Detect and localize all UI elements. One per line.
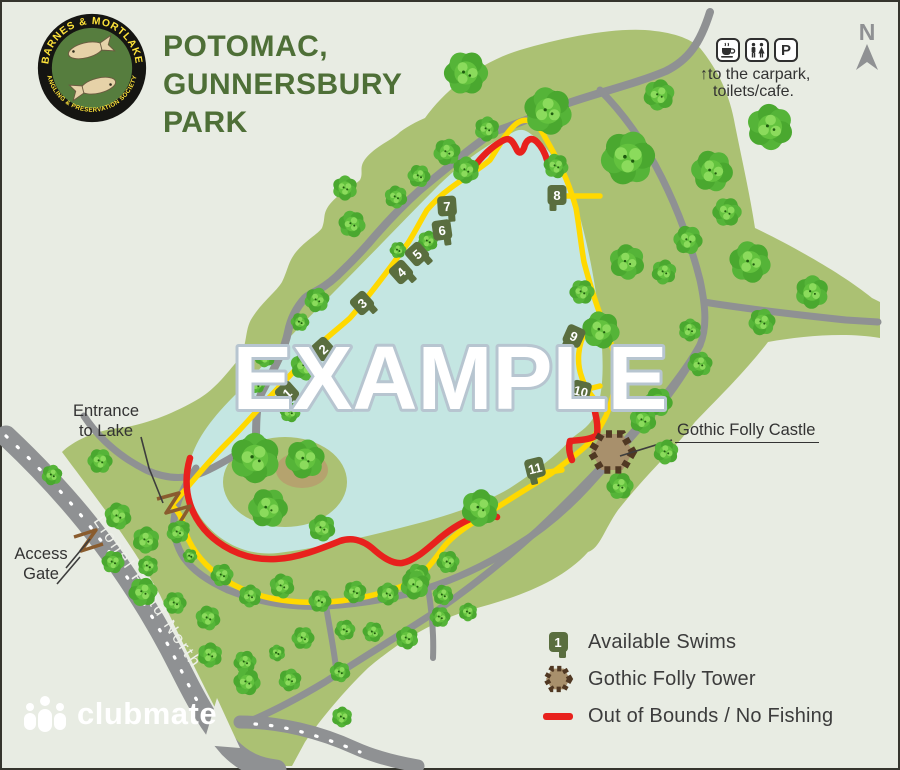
facilities-text-1: to the carpark, <box>708 66 810 83</box>
folly-label: Gothic Folly Castle <box>675 420 819 443</box>
legend-row-swims: 1 Available Swims <box>540 628 833 656</box>
facilities-text-2: toilets/cafe. <box>700 83 810 100</box>
title-line-1: POTOMAC, <box>163 28 402 66</box>
park-map-canvas: Lionel Road North 1234567891011 EXAMPLE <box>0 0 900 770</box>
swim-marker-icon: 1 <box>549 632 568 652</box>
compass: N <box>845 20 889 76</box>
legend-row-folly: Gothic Folly Tower <box>540 665 833 693</box>
tree-icon <box>748 104 792 150</box>
legend-label-bounds: Out of Bounds / No Fishing <box>588 705 833 728</box>
title-line-3: PARK <box>163 104 402 142</box>
legend-label-swims: Available Swims <box>588 631 736 654</box>
toilets-icon <box>745 38 769 62</box>
facilities-note: P ↑to the carpark, toilets/cafe. <box>700 38 810 100</box>
compass-label: N <box>845 20 889 44</box>
page-title: POTOMAC, GUNNERSBURY PARK <box>163 28 402 142</box>
brand-name: clubmate <box>77 696 217 732</box>
people-icon <box>22 694 68 734</box>
legend-swim-number: 1 <box>554 635 561 650</box>
title-line-2: GUNNERSBURY <box>163 66 402 104</box>
access-label-line-1: Access <box>8 544 74 564</box>
entrance-label: Entrance to Lake <box>60 401 152 441</box>
folly-tower-icon <box>541 663 575 695</box>
legend-label-folly: Gothic Folly Tower <box>588 668 756 691</box>
tree-icon <box>332 707 352 728</box>
up-arrow-icon: ↑ <box>700 66 708 83</box>
parking-icon: P <box>774 38 798 62</box>
legend: 1 Available Swims Gothic Folly Tower Out… <box>540 628 833 739</box>
club-logo: BARNES & MORTLAKE ANGLING & PRESERVATION… <box>36 12 148 124</box>
access-gate-label: Access Gate <box>8 544 74 584</box>
entrance-label-line-1: Entrance <box>60 401 152 421</box>
entrance-label-line-2: to Lake <box>60 421 152 441</box>
access-label-line-2: Gate <box>8 564 74 584</box>
parking-letter: P <box>781 42 791 59</box>
north-arrow-icon <box>853 44 881 71</box>
clubmate-logo: clubmate <box>22 694 217 734</box>
cafe-icon <box>716 38 740 62</box>
legend-row-bounds: Out of Bounds / No Fishing <box>540 702 833 730</box>
out-of-bounds-icon <box>543 713 573 720</box>
